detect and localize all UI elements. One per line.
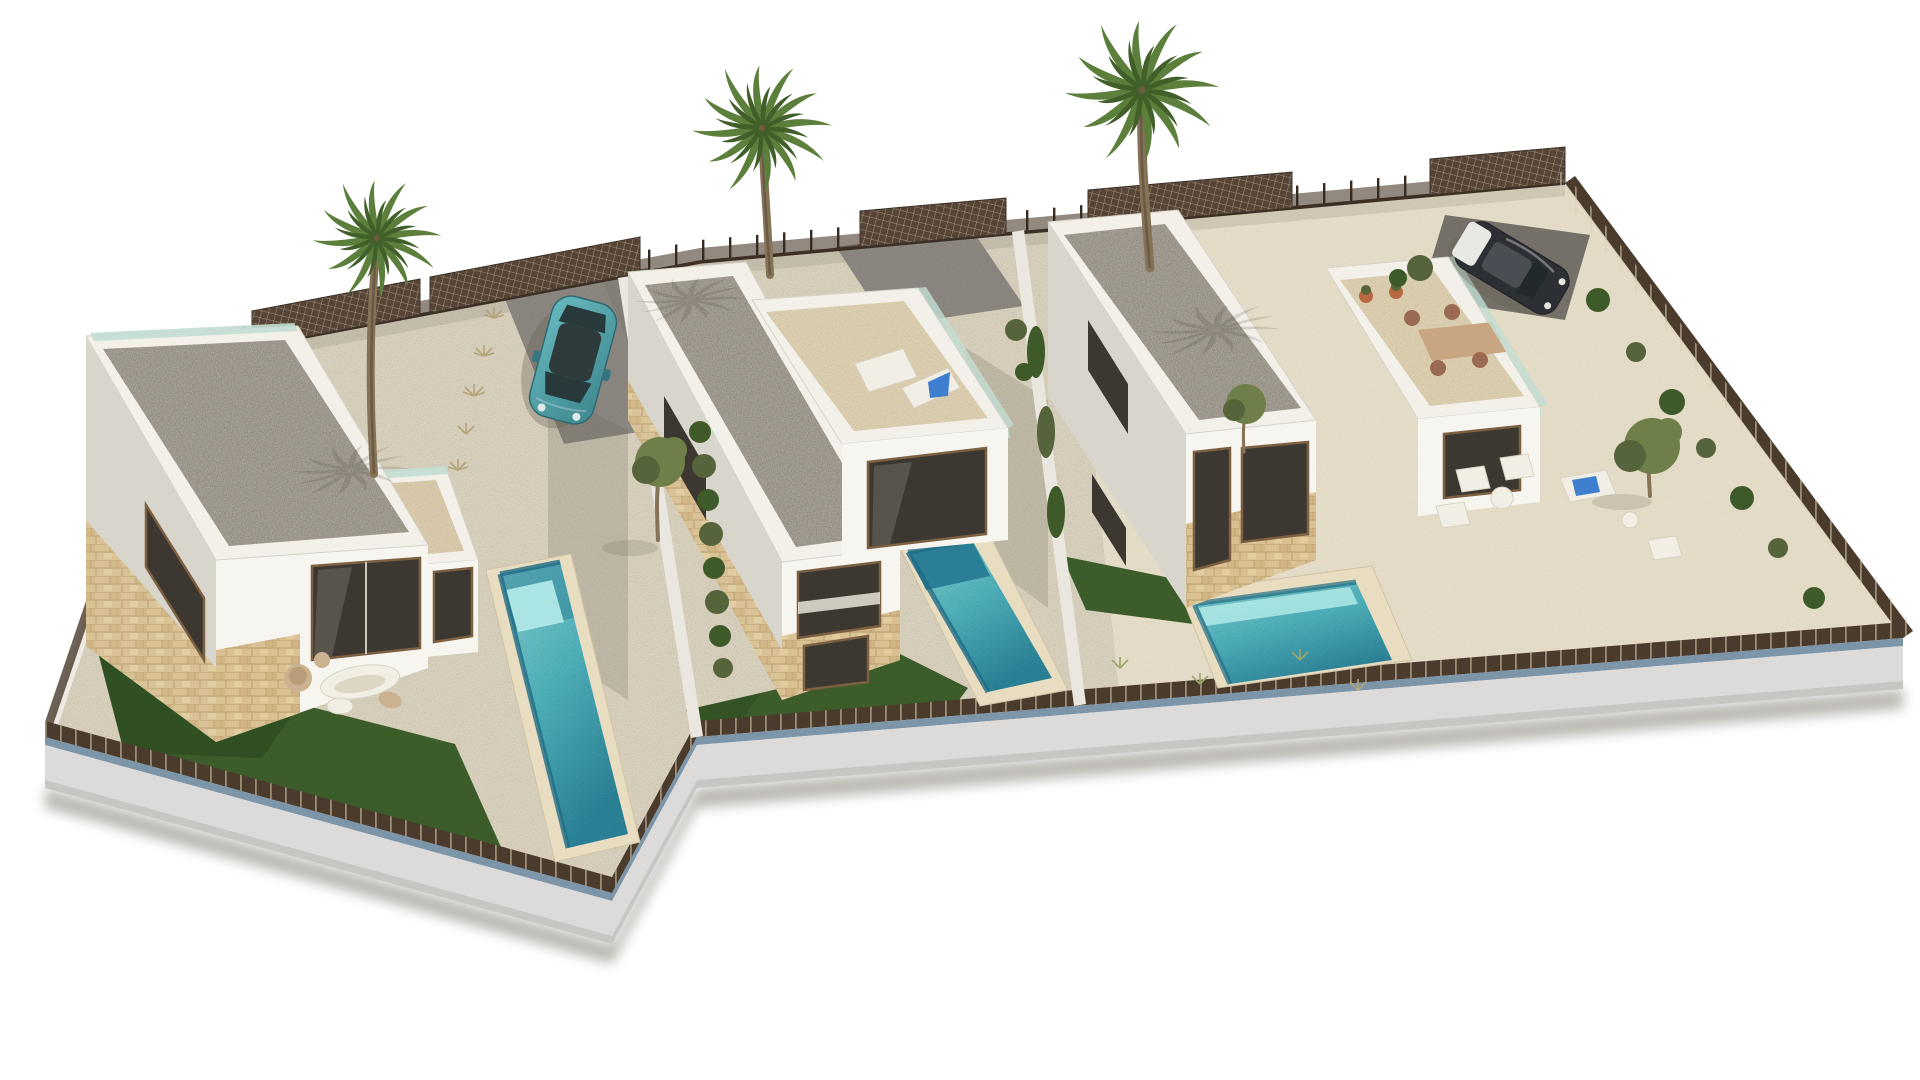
dining-chair <box>1444 304 1460 320</box>
garden-chair <box>1436 502 1470 528</box>
villa-3-door <box>1194 448 1230 570</box>
dining-chair <box>1472 352 1488 368</box>
side-table <box>1622 512 1638 528</box>
garden-armchair-2 <box>1500 454 1534 480</box>
pebble-stool <box>327 698 353 714</box>
coffee-table <box>1491 487 1513 509</box>
render-canvas <box>0 0 1920 1080</box>
architectural-render <box>0 0 1920 1080</box>
villa-1-annex-window <box>434 568 472 642</box>
dining-chair <box>1430 360 1446 376</box>
garden-armchair-1 <box>1456 466 1490 492</box>
villa-3-window-front <box>1242 442 1308 542</box>
pebble-stool-3 <box>314 652 330 668</box>
dining-chair <box>1404 310 1420 326</box>
garden-recliner <box>1648 536 1682 560</box>
